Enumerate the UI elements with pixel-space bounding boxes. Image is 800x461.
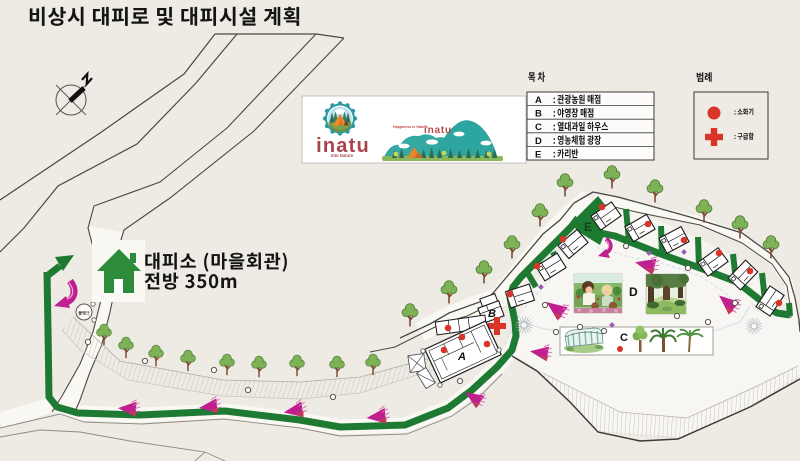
svg-text:D: D	[535, 136, 542, 147]
svg-text:Happiness in Nature: Happiness in Nature	[393, 125, 428, 129]
svg-text:A: A	[457, 351, 466, 363]
svg-text:D: D	[629, 285, 638, 299]
svg-text:C: C	[535, 122, 542, 133]
svg-text:Into Nature: Into Nature	[331, 153, 354, 158]
svg-text:A: A	[535, 95, 542, 106]
svg-text:C: C	[620, 332, 628, 344]
svg-text:inatu: inatu	[424, 125, 452, 136]
svg-text:E: E	[584, 220, 592, 234]
svg-text:E: E	[535, 149, 541, 160]
svg-text:B: B	[535, 109, 542, 120]
